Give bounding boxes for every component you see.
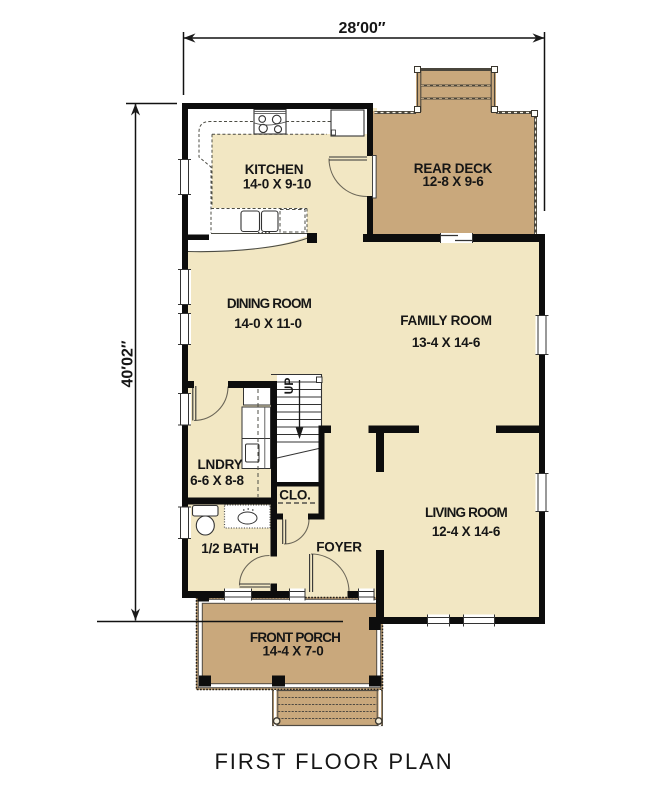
svg-text:CLO.: CLO. bbox=[279, 488, 310, 503]
svg-text:FIRST FLOOR PLAN: FIRST FLOOR PLAN bbox=[214, 749, 453, 774]
svg-text:UP: UP bbox=[282, 378, 296, 395]
svg-text:28′00″: 28′00″ bbox=[338, 20, 385, 37]
svg-text:14-4 X 7-0: 14-4 X 7-0 bbox=[262, 644, 323, 659]
svg-text:40′02″: 40′02″ bbox=[120, 340, 137, 387]
svg-text:LIVING ROOM: LIVING ROOM bbox=[425, 505, 508, 520]
svg-text:6-6 X 8-8: 6-6 X 8-8 bbox=[190, 473, 244, 488]
svg-text:1/2 BATH: 1/2 BATH bbox=[201, 541, 258, 556]
svg-text:FOYER: FOYER bbox=[316, 540, 362, 555]
svg-text:DINING ROOM: DINING ROOM bbox=[227, 296, 312, 311]
svg-text:FAMILY ROOM: FAMILY ROOM bbox=[400, 313, 492, 328]
svg-text:14-0 X 9-10: 14-0 X 9-10 bbox=[243, 177, 311, 192]
svg-text:13-4 X 14-6: 13-4 X 14-6 bbox=[412, 335, 481, 350]
svg-text:12-4 X 14-6: 12-4 X 14-6 bbox=[432, 524, 501, 539]
svg-text:14-0 X 11-0: 14-0 X 11-0 bbox=[234, 316, 302, 331]
svg-text:12-8 X 9-6: 12-8 X 9-6 bbox=[422, 174, 484, 189]
svg-text:LNDRY: LNDRY bbox=[198, 457, 243, 472]
svg-text:KITCHEN: KITCHEN bbox=[245, 162, 304, 177]
